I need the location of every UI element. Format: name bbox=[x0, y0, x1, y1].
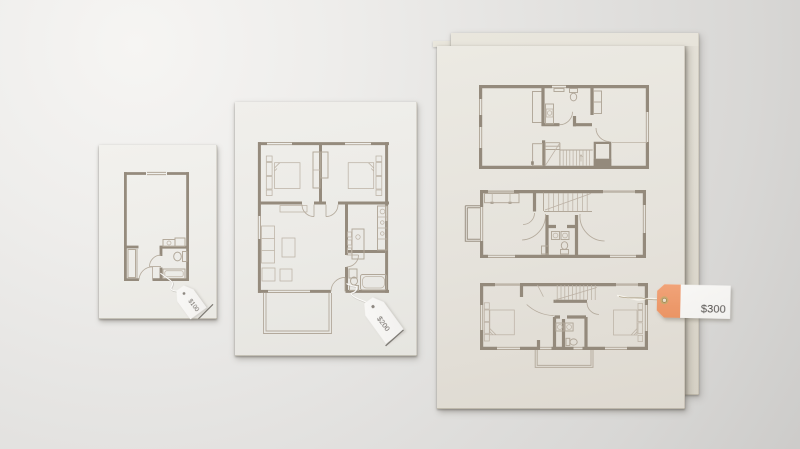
svg-text:$300: $300 bbox=[701, 303, 726, 316]
